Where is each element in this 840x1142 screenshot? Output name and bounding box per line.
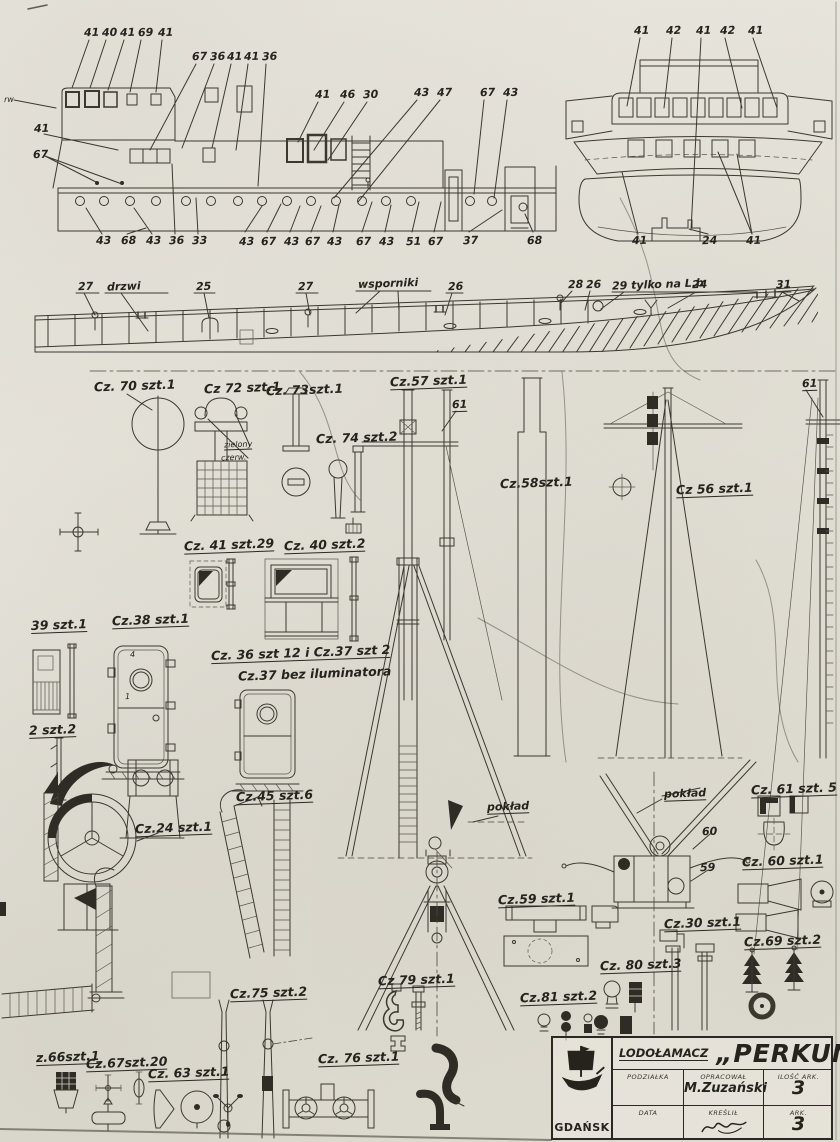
callout-number: 69	[138, 26, 154, 40]
callout-number: 41	[158, 26, 174, 40]
callout-number: 67	[356, 235, 372, 249]
sheet-number-value: 3	[764, 1117, 833, 1131]
part-label-cz75: Cz.75 szt.2	[230, 984, 308, 1003]
door-mark: 1	[125, 692, 130, 701]
callout-number: 41	[632, 234, 648, 248]
ladder-horizontal	[2, 972, 210, 1018]
shipyard-logo-cell: GDAŃSK	[553, 1038, 613, 1138]
part-label-cz45: Cz.45 szt.6	[236, 787, 314, 806]
ladder-cz45	[220, 790, 290, 958]
callout-number: 68	[121, 234, 137, 248]
callout-number: 60	[702, 825, 718, 839]
davit-post-left	[74, 868, 124, 998]
vessel-type-label: LODOŁAMACZ	[619, 1046, 708, 1061]
drawn-label: KREŚLIŁ	[684, 1109, 763, 1117]
callout-number: 41	[34, 122, 50, 136]
callout-number: 41	[696, 24, 712, 38]
leader-lines-parts	[127, 390, 823, 881]
part-cz74-vents	[329, 446, 365, 533]
callout-number: 36	[169, 234, 185, 248]
profile-label: 25	[196, 280, 212, 294]
part-label-cz74: Cz. 74 szt.2	[316, 429, 398, 447]
part-label-cz73: Cz. 73szt.1	[266, 381, 344, 399]
callout-number: 36	[262, 50, 278, 64]
post-cz58	[514, 378, 635, 756]
deck-note: pokład	[487, 799, 530, 814]
part-label-cz60: Cz. 60 szt.1	[742, 852, 824, 871]
part-label-cz70: Cz. 70 szt.1	[94, 377, 176, 395]
drawn-cell: KREŚLIŁ	[684, 1106, 764, 1138]
sheet-count-value: 3	[764, 1081, 833, 1095]
callout-number: 24	[702, 234, 718, 248]
sheet-count-cell: ILOŚĆ ARK. 3	[764, 1070, 833, 1106]
sheet-number-cell: ARK. 3	[764, 1106, 833, 1138]
callout-number: 41	[634, 24, 650, 38]
part-label-39: 39 szt.1	[31, 616, 87, 634]
callout-number: 51	[406, 235, 422, 249]
leader-lines-front	[622, 38, 777, 234]
profile-label: 26	[448, 280, 464, 294]
callout-number: 43	[146, 234, 162, 248]
callout-number: 43	[96, 234, 112, 248]
parts-cz80-lamps	[594, 981, 642, 1034]
part-label-cz76: Cz. 76 szt.1	[318, 1049, 400, 1068]
callout-number: 59	[700, 861, 716, 875]
door-cz36	[232, 690, 303, 791]
callout-number: 46	[340, 88, 356, 102]
profile-label: drzwi	[107, 279, 141, 293]
parts-cz69-daysignals	[742, 946, 804, 1017]
callout-number: 30	[363, 88, 379, 102]
parts-cz59	[504, 906, 618, 966]
kogge-ship-logo-icon	[559, 1044, 605, 1102]
scale-cell: PODZIAŁKA	[613, 1070, 684, 1106]
date-cell: DATA	[613, 1106, 684, 1138]
callout-number: 42	[720, 24, 736, 38]
superstructure-front-view	[566, 60, 832, 241]
superstructure-side-view	[53, 86, 556, 231]
city-label: GDAŃSK	[553, 1121, 611, 1134]
profile-label: 26	[586, 278, 602, 292]
blueprint-sheet: 41 40 41 69 41 67 36 41 41 36 41 46 30 4…	[0, 0, 840, 1142]
parts-cz67	[92, 1072, 144, 1131]
profile-label: 28	[568, 278, 584, 292]
prepared-by-name: M.Zuzański	[684, 1081, 763, 1096]
parts-cz30	[660, 930, 714, 1030]
callout-number: 41	[315, 88, 331, 102]
part-label-cz59: Cz.59 szt.1	[498, 890, 576, 909]
part-label-cz80: Cz. 80 szt.3	[600, 956, 682, 975]
profile-label: 27	[298, 280, 314, 294]
callout-number: 43	[284, 235, 300, 249]
callout-number: 41	[84, 26, 100, 40]
callout-number: 33	[192, 234, 208, 248]
part-label-cz69: Cz.69 szt.2	[744, 932, 822, 951]
callout-number: 36	[210, 50, 226, 64]
part-label-cz40: Cz. 40 szt.2	[284, 536, 366, 555]
part-label-cz79: Cz 79 szt.1	[378, 971, 455, 990]
callout-number: 68	[527, 234, 543, 248]
color-note-green: zielony	[224, 440, 253, 451]
profile-label: 27	[78, 280, 94, 294]
part-cz73-vent	[282, 388, 310, 496]
callout-number: 67	[33, 148, 49, 162]
parts-cz60	[736, 879, 833, 938]
part-label-cz61: Cz. 61 szt. 5	[751, 780, 837, 799]
callout-number: 37	[463, 234, 479, 248]
part-label-cz57: Cz.57 szt.1	[390, 372, 468, 391]
callout-number: 41	[227, 50, 243, 64]
vessel-name: „PERKUN”	[716, 1039, 840, 1068]
prepared-label: OPRACOWAŁ	[684, 1073, 763, 1081]
callout-number: 41	[748, 24, 764, 38]
part-label-cz56: Cz 56 szt.1	[676, 480, 753, 499]
mast-cz57	[338, 390, 532, 868]
callout-number: 67	[428, 235, 444, 249]
part-label-cz38: Cz.38 szt.1	[112, 611, 190, 630]
part-label-cz63: Cz. 63 szt.1	[148, 1064, 230, 1083]
callout-number: 61	[802, 377, 818, 392]
profile-label: 24	[692, 278, 708, 292]
callout-number: 41	[746, 234, 762, 248]
callout-number: 42	[666, 24, 682, 38]
color-note-red: czerw.	[221, 453, 247, 463]
part-label-2szt: 2 szt.2	[29, 721, 77, 739]
date-label: DATA	[613, 1109, 683, 1117]
callout-number: 43	[379, 235, 395, 249]
profile-label: wsporniki	[358, 276, 419, 291]
sheet-edges	[0, 2, 836, 1140]
part-label-cz41: Cz. 41 szt.29	[184, 535, 275, 554]
parts-66	[54, 1072, 78, 1113]
door-39	[33, 644, 76, 718]
door-cz38	[102, 646, 184, 779]
part-label-cz58: Cz.58szt.1	[500, 474, 573, 492]
signature	[698, 1117, 750, 1137]
part-label-cz24: Cz.24 szt.1	[135, 819, 213, 838]
leader-lines-side-top	[14, 40, 507, 202]
parts-cz79-hook	[384, 984, 425, 1051]
parts-cz76-manifold	[283, 1084, 374, 1128]
part-cz70-lamp	[60, 396, 184, 551]
callout-number: 43	[503, 86, 519, 100]
callout-number: 47	[437, 86, 453, 100]
prepared-cell: OPRACOWAŁ M.Zuzański	[684, 1070, 764, 1106]
callout-note: rw	[4, 95, 14, 104]
drawing-title-row: LODOŁAMACZ „PERKUN”	[613, 1038, 831, 1070]
part-dark-pipe	[420, 1048, 464, 1130]
drawing-linework	[0, 0, 840, 1142]
mast-cz57-aframe	[358, 850, 514, 1036]
callout-number: 40	[102, 26, 118, 40]
callout-number: 67	[261, 235, 277, 249]
callout-number: 67	[192, 50, 208, 64]
window-cz41	[190, 559, 235, 609]
title-block: GDAŃSK LODOŁAMACZ „PERKUN” PODZIAŁKA OPR…	[551, 1036, 833, 1140]
callout-number: 43	[327, 235, 343, 249]
window-cz40	[265, 557, 358, 641]
deck-note: pokład	[664, 786, 707, 801]
profile-label: 31	[776, 278, 792, 292]
door-mark: 4	[130, 650, 135, 659]
part-label-cz30: Cz.30 szt.1	[664, 914, 742, 933]
callout-number: 41	[120, 26, 136, 40]
callout-number: 61	[452, 398, 468, 413]
callout-number: 67	[305, 235, 321, 249]
part-label-cz81: Cz.81 szt.2	[520, 988, 598, 1007]
scale-label: PODZIAŁKA	[613, 1073, 683, 1081]
callout-number: 41	[244, 50, 260, 64]
parts-cz63	[154, 1090, 243, 1128]
callout-number: 67	[480, 86, 496, 100]
callout-number: 43	[414, 86, 430, 100]
callout-number: 43	[239, 235, 255, 249]
